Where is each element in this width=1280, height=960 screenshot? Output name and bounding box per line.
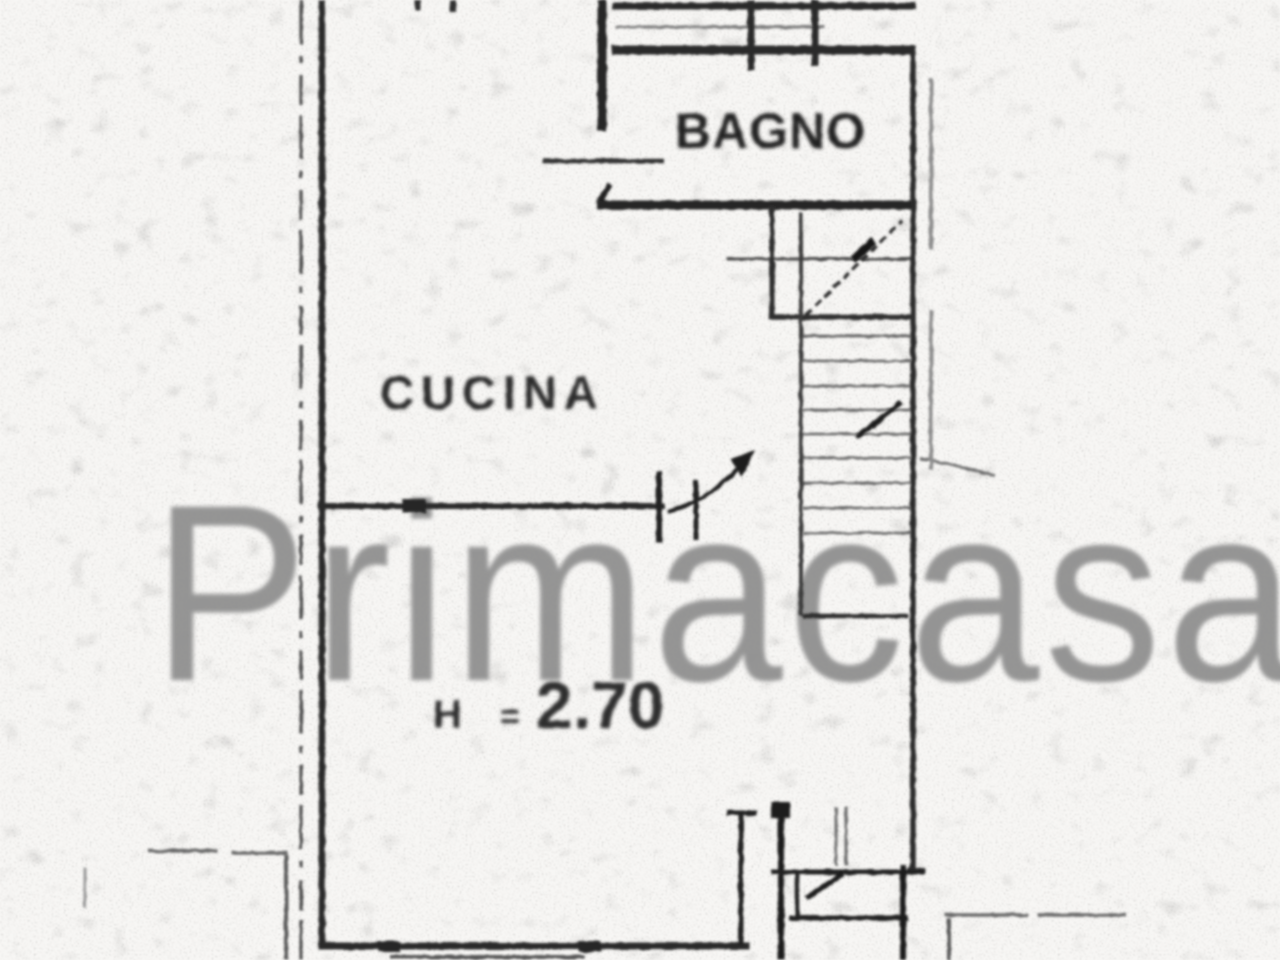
svg-text:CUCINA: CUCINA [380, 366, 605, 419]
svg-text:BAGNO: BAGNO [675, 103, 866, 159]
